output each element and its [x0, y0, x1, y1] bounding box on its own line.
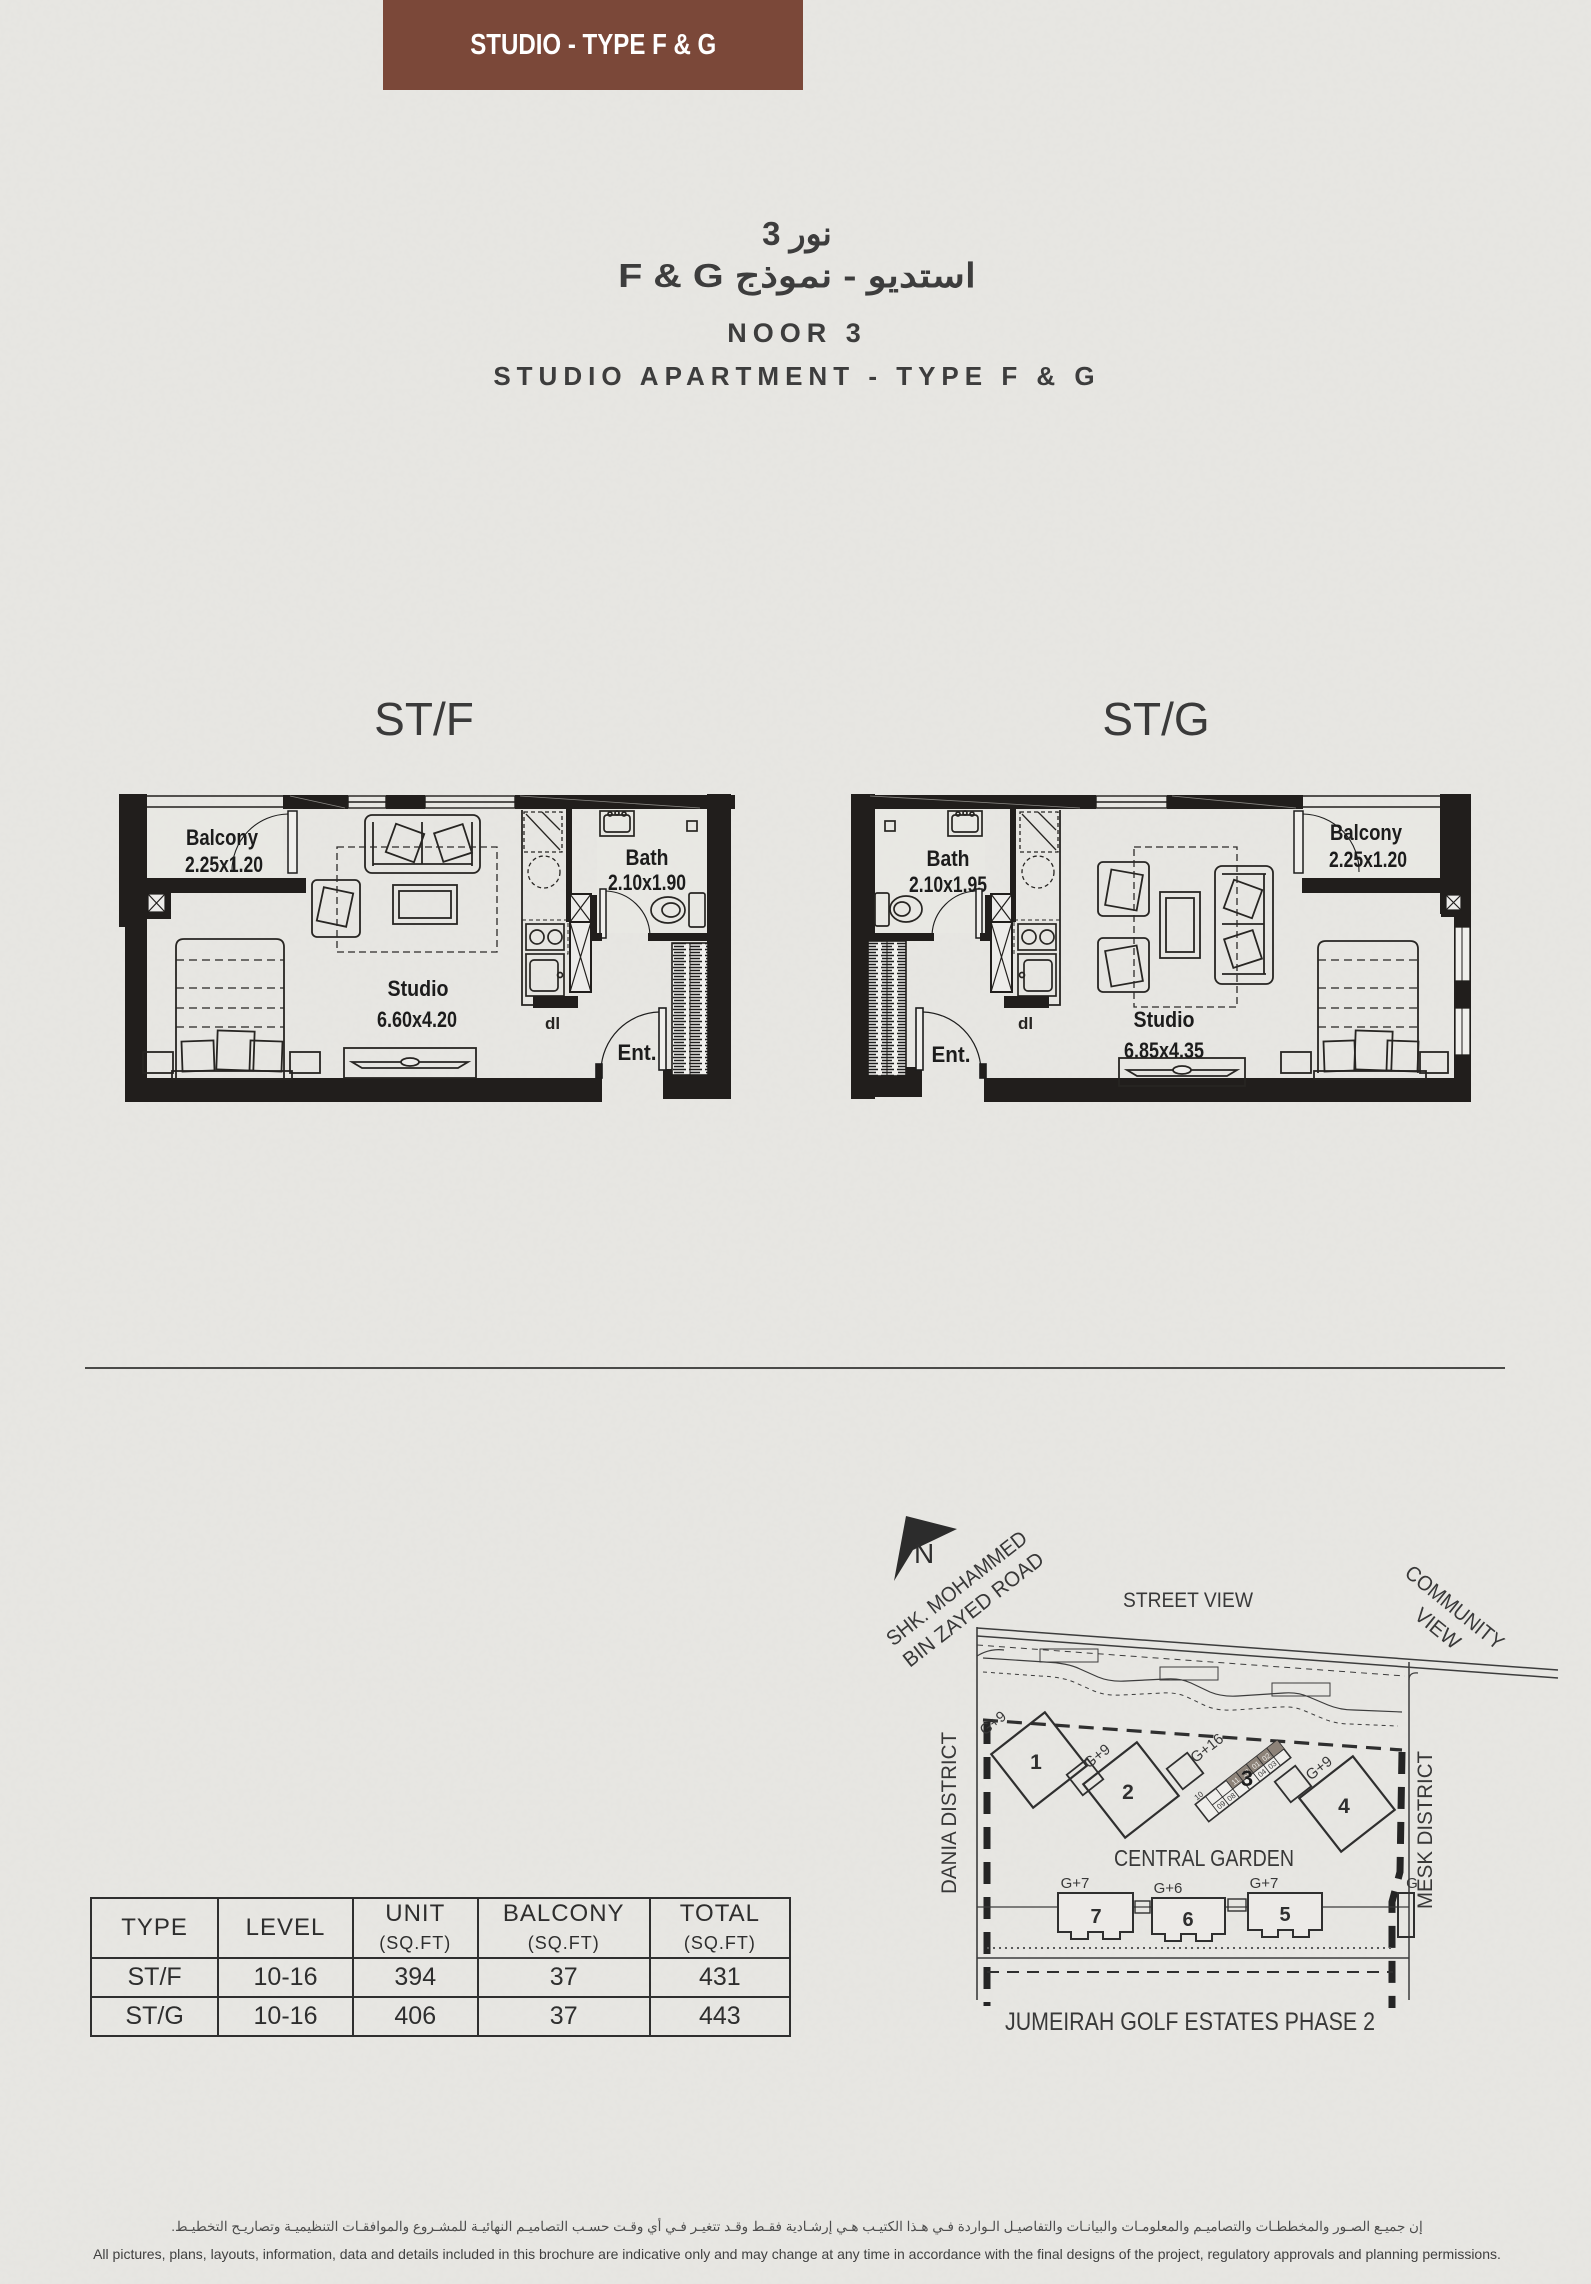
- svg-text:5: 5: [1279, 1904, 1290, 1926]
- svg-text:G+7: G+7: [1061, 1875, 1090, 1892]
- svg-text:Studio: Studio: [388, 976, 449, 1001]
- svg-text:2.25x1.20: 2.25x1.20: [1329, 847, 1407, 872]
- svg-text:Bath: Bath: [626, 845, 669, 870]
- svg-text:G+7: G+7: [1250, 1875, 1279, 1892]
- svg-text:CENTRAL GARDEN: CENTRAL GARDEN: [1114, 1845, 1294, 1871]
- svg-text:6.60x4.20: 6.60x4.20: [377, 1007, 457, 1032]
- svg-text:STREET VIEW: STREET VIEW: [1123, 1589, 1253, 1612]
- svg-text:G: G: [1406, 1875, 1418, 1892]
- svg-text:7: 7: [1090, 1906, 1101, 1928]
- svg-text:Ent.: Ent.: [618, 1040, 657, 1065]
- svg-text:G+6: G+6: [1154, 1880, 1183, 1897]
- svg-text:N: N: [914, 1538, 934, 1569]
- svg-text:Balcony: Balcony: [1330, 820, 1403, 845]
- svg-text:2.10x1.90: 2.10x1.90: [608, 870, 686, 895]
- svg-text:dl: dl: [545, 1014, 560, 1033]
- svg-text:2: 2: [1122, 1781, 1134, 1804]
- svg-text:3: 3: [1241, 1766, 1253, 1791]
- svg-text:G+9: G+9: [977, 1708, 1010, 1739]
- svg-text:2.25x1.20: 2.25x1.20: [185, 852, 263, 877]
- svg-text:Studio: Studio: [1134, 1007, 1195, 1032]
- svg-text:Ent.: Ent.: [932, 1042, 971, 1067]
- svg-text:G+9: G+9: [1303, 1753, 1336, 1784]
- svg-text:6: 6: [1182, 1909, 1193, 1931]
- svg-text:6.85x4.35: 6.85x4.35: [1124, 1038, 1204, 1063]
- svg-text:DANIA DISTRICT: DANIA DISTRICT: [938, 1732, 961, 1894]
- svg-text:1: 1: [1030, 1751, 1042, 1774]
- svg-text:dl: dl: [1018, 1014, 1033, 1033]
- svg-text:JUMEIRAH GOLF ESTATES PHASE 2: JUMEIRAH GOLF ESTATES PHASE 2: [1005, 2008, 1375, 2036]
- svg-text:Balcony: Balcony: [186, 825, 259, 850]
- svg-text:Bath: Bath: [927, 846, 970, 871]
- svg-text:4: 4: [1338, 1795, 1350, 1818]
